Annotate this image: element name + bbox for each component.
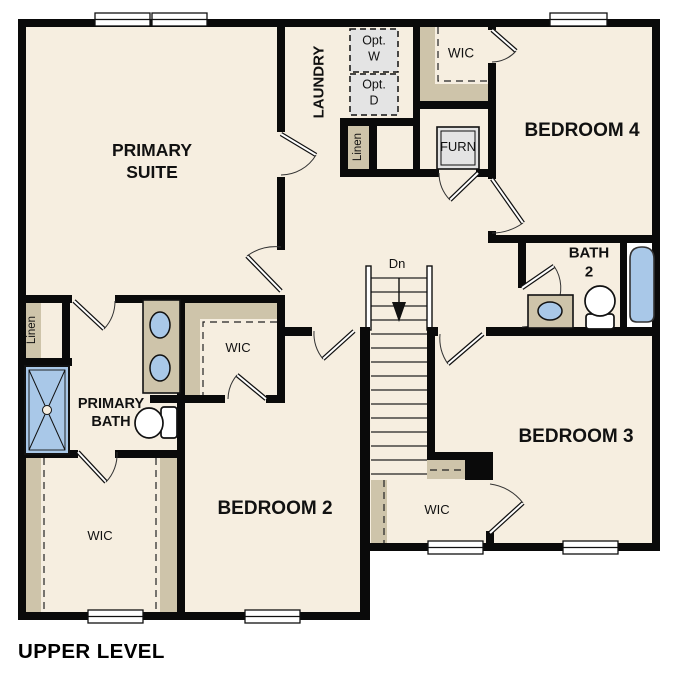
stair-rail-left	[366, 266, 371, 330]
window	[550, 13, 607, 26]
label-furnace: FURN	[440, 139, 476, 155]
window	[95, 13, 150, 26]
wic-top-shelf-bottom	[420, 84, 488, 103]
wall-segment	[115, 450, 185, 458]
wall-segment	[488, 63, 496, 179]
sink	[150, 355, 170, 381]
room-label-bedroom3: BEDROOM 3	[518, 425, 633, 449]
label-stairs-down: Dn	[389, 256, 406, 272]
wall-segment	[488, 19, 496, 30]
wall-segment	[277, 19, 285, 132]
shower	[25, 366, 69, 454]
bath2-vanity	[528, 295, 573, 328]
sink	[150, 312, 170, 338]
wall-segment	[115, 295, 285, 303]
wall-segment	[620, 243, 627, 330]
room-label-primary-suite: PRIMARY SUITE	[95, 140, 210, 184]
wall-segment	[413, 19, 420, 109]
window	[563, 541, 618, 554]
wall-segment	[150, 395, 225, 403]
chase-notch	[465, 452, 493, 480]
label-opt-dryer: Opt. D	[357, 77, 391, 108]
room-label-bedroom2: BEDROOM 2	[217, 497, 332, 521]
wall-segment	[518, 243, 526, 288]
wall-segment	[360, 327, 370, 620]
wic-ll-shelf-right	[160, 458, 177, 612]
toilet	[585, 286, 615, 329]
wall-segment	[285, 327, 312, 336]
wall-segment	[413, 109, 420, 177]
room-label-primary-bath: PRIMARY BATH	[67, 395, 155, 431]
wall-segment	[277, 295, 285, 403]
wall-segment	[277, 177, 285, 250]
double-vanity	[143, 300, 180, 393]
room-label-laundry: LAUNDRY	[311, 46, 330, 119]
label-linen-top: Linen	[351, 133, 365, 161]
room-label-bedroom4: BEDROOM 4	[524, 119, 639, 143]
wall-segment	[62, 295, 70, 364]
window	[88, 610, 143, 623]
room-label-wic-top: WIC	[448, 46, 474, 63]
wall-segment	[413, 101, 496, 109]
room-label-wic-bedroom3: WIC	[424, 502, 449, 518]
bathtub	[630, 247, 654, 322]
floor-plan-svg	[0, 0, 687, 687]
label-opt-washer: Opt. W	[357, 33, 391, 64]
room-label-wic-middle: WIC	[225, 340, 250, 356]
window	[245, 610, 300, 623]
wall-segment	[488, 235, 660, 243]
wall-segment	[266, 395, 285, 403]
wall-segment	[427, 452, 467, 460]
floor-lower-left	[22, 543, 364, 616]
floor-plan: PRIMARY SUITE LAUNDRY Opt. W Opt. D WIC …	[0, 0, 687, 687]
wic-b3-shelf-top	[427, 458, 465, 479]
wall-segment	[18, 612, 368, 620]
stair-rail-right	[427, 266, 432, 330]
window	[428, 541, 483, 554]
page-title: UPPER LEVEL	[18, 640, 165, 664]
window	[152, 13, 207, 26]
room-label-bath2: BATH 2	[564, 244, 614, 282]
wall-segment	[427, 327, 435, 452]
label-linen-left: Linen	[25, 316, 39, 344]
wall-segment	[340, 118, 420, 126]
sink	[538, 302, 562, 320]
wall-segment	[340, 169, 439, 177]
wic-ll-shelf-left	[26, 458, 41, 612]
wall-segment	[340, 118, 348, 177]
room-label-wic-lower-left: WIC	[87, 528, 112, 544]
wall-segment	[369, 118, 377, 177]
wic-middle-shelf-left	[185, 303, 200, 397]
